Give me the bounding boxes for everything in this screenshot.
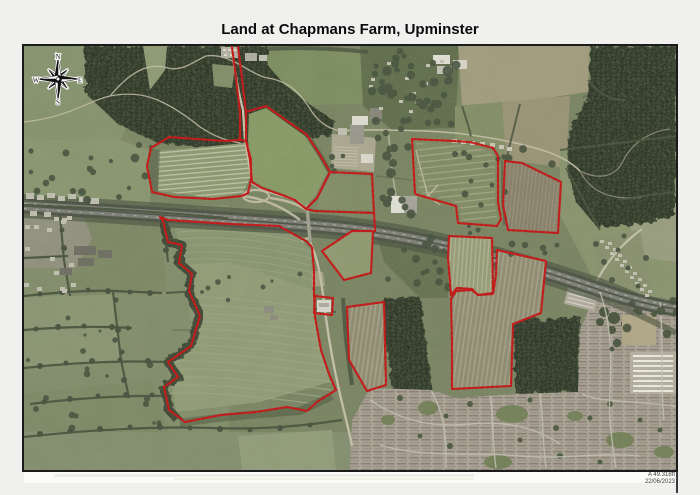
svg-text:W: W [33,77,40,85]
svg-text:N: N [55,53,60,61]
svg-text:S: S [56,99,60,107]
svg-text:E: E [78,77,82,85]
